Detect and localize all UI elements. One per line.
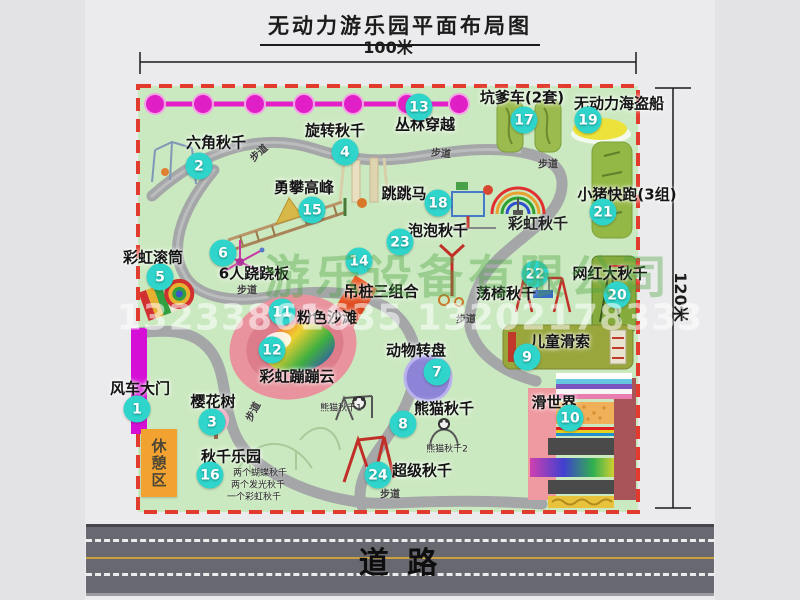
- item-label-8: 熊猫秋千: [414, 398, 474, 419]
- item-badge-19: 19: [575, 107, 602, 134]
- item-badge-1: 1: [124, 396, 151, 423]
- item-label-23: 泡泡秋千: [408, 220, 468, 241]
- item-badge-7: 7: [424, 359, 451, 386]
- item-badge-17: 17: [511, 107, 538, 134]
- item-badge-12: 12: [259, 337, 286, 364]
- item-label-9: 儿童滑索: [530, 331, 590, 352]
- item-label-2: 六角秋千: [186, 132, 246, 153]
- item-label-14: 吊桩三组合: [343, 281, 418, 302]
- item-label-18: 跳跳马: [381, 183, 426, 204]
- item-badge-2: 2: [186, 153, 213, 180]
- item-badge-14: 14: [346, 248, 373, 275]
- item-label-21: 小猪快跑(3组): [577, 184, 676, 205]
- item-badge-10: 10: [557, 405, 584, 432]
- item-label-15: 勇攀高峰: [274, 177, 334, 198]
- item-label-6: 6人跷跷板: [219, 263, 289, 284]
- item-badge-4: 4: [332, 139, 359, 166]
- item-label-22: 荡椅秋千: [476, 283, 536, 304]
- item-badge-11: 11: [269, 299, 296, 326]
- item-label-24: 超级秋千: [392, 460, 452, 481]
- item-label-20: 网红大秋千: [572, 263, 647, 284]
- dimension-height-label: 120米: [670, 272, 694, 321]
- item-label-11: 粉色沙滩: [297, 307, 357, 328]
- item-label-12: 彩虹蹦蹦云: [259, 366, 334, 387]
- item-badge-6: 6: [210, 240, 237, 267]
- item-label-4: 旋转秋千: [305, 120, 365, 141]
- item-badge-22: 22: [522, 261, 549, 288]
- annotation-0: 彩虹秋千: [508, 213, 568, 234]
- dimension-width-label: 100米: [363, 34, 412, 58]
- rest-area-zone: 休憩区: [141, 429, 177, 497]
- item-badge-16: 16: [197, 462, 224, 489]
- item-badge-24: 24: [365, 462, 392, 489]
- item-badge-18: 18: [425, 190, 452, 217]
- footpath-label-6: 步道: [380, 486, 400, 501]
- item-label-17: 坑爹车(2套): [480, 87, 564, 108]
- footpath-label-3: 步道: [237, 282, 257, 297]
- item-label-7: 动物转盘: [386, 340, 446, 361]
- item-badge-21: 21: [590, 199, 617, 226]
- item-badge-8: 8: [390, 411, 417, 438]
- footpath-label-2: 步道: [538, 156, 558, 171]
- item-badge-9: 9: [514, 344, 541, 371]
- item-badge-15: 15: [299, 197, 326, 224]
- item-badge-3: 3: [199, 409, 226, 436]
- footpath-label-1: 步道: [430, 144, 451, 161]
- annotation-1: 熊猫秋千1: [320, 401, 362, 414]
- footpath-label-4: 步道: [456, 311, 476, 326]
- road-strip: 道 路: [86, 524, 714, 596]
- item-badge-23: 23: [387, 229, 414, 256]
- annotation-2: 熊猫秋千2: [426, 442, 468, 455]
- playground-plan: 无动力游乐园平面布局图 100米 120米 休憩区 风车大门1六角秋千2樱花树3…: [0, 0, 800, 600]
- item-badge-20: 20: [604, 282, 631, 309]
- item-badge-5: 5: [147, 264, 174, 291]
- annotation-5: 一个彩虹秋千: [227, 490, 281, 503]
- item-badge-13: 13: [406, 94, 433, 121]
- road-label: 道 路: [359, 538, 441, 582]
